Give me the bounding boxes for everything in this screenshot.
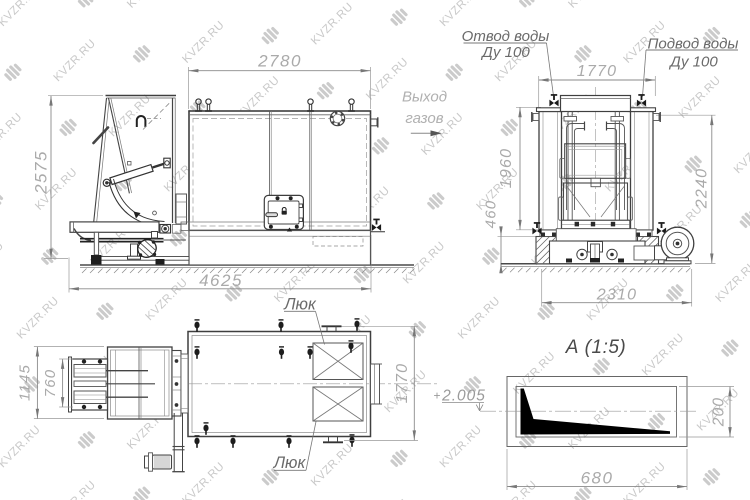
svg-text:Отвод воды: Отвод воды — [462, 28, 550, 45]
svg-text:2240: 2240 — [694, 168, 711, 209]
svg-text:А (1:5): А (1:5) — [565, 337, 627, 358]
svg-text:Ду 100: Ду 100 — [668, 54, 718, 71]
svg-text:2310: 2310 — [596, 286, 637, 303]
svg-text:1770: 1770 — [394, 363, 411, 403]
svg-text:2.005: 2.005 — [441, 388, 486, 405]
svg-text:1960: 1960 — [498, 148, 515, 188]
svg-text:2575: 2575 — [32, 150, 51, 195]
svg-text:2780: 2780 — [257, 52, 302, 71]
svg-text:680: 680 — [581, 469, 614, 488]
svg-text:460: 460 — [483, 200, 500, 229]
svg-text:Ду 100: Ду 100 — [480, 44, 530, 61]
svg-text:1145: 1145 — [17, 364, 34, 401]
svg-text:760: 760 — [42, 369, 59, 398]
svg-text:Люк: Люк — [283, 296, 317, 314]
svg-text:+: + — [433, 389, 440, 403]
svg-text:4625: 4625 — [199, 271, 243, 290]
svg-text:1770: 1770 — [577, 63, 617, 80]
svg-text:200: 200 — [711, 397, 728, 427]
svg-text:газов: газов — [405, 110, 443, 127]
svg-text:Выход: Выход — [402, 89, 447, 106]
svg-text:Люк: Люк — [273, 454, 307, 472]
